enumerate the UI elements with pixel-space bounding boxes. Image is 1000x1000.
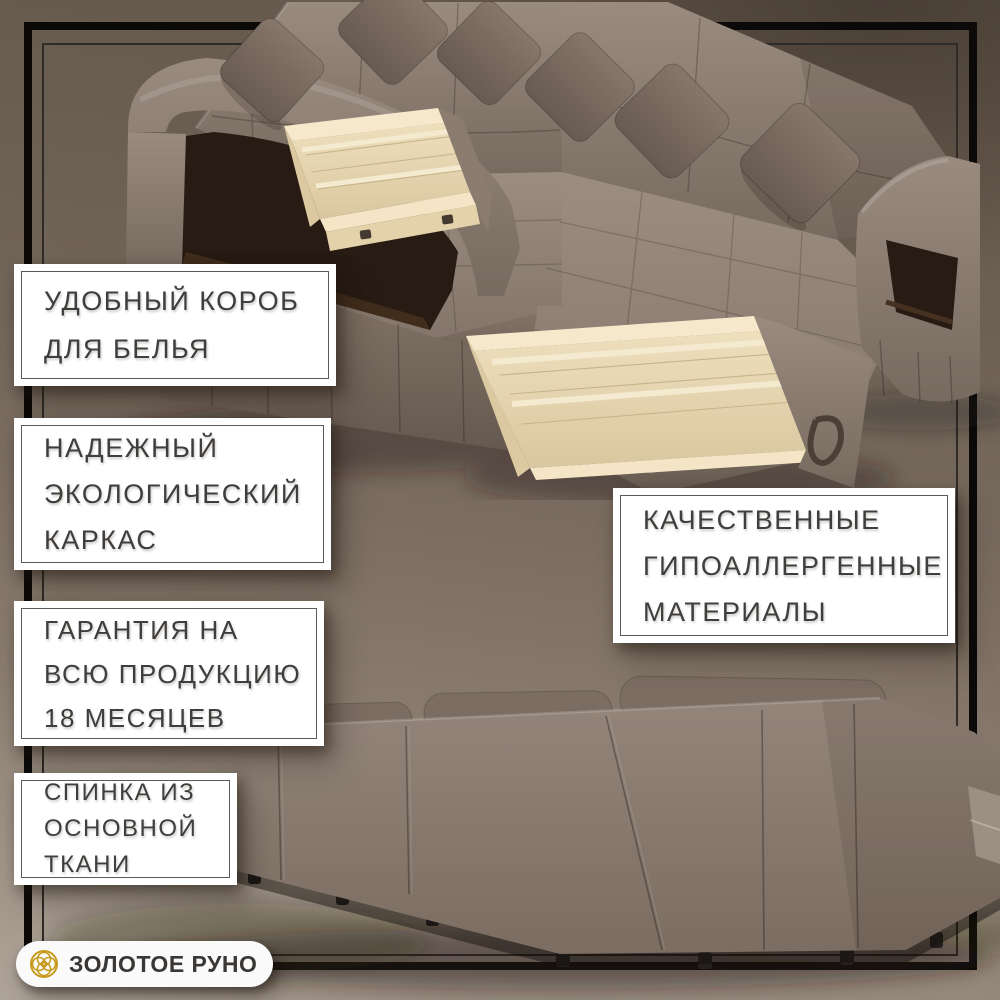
- feature-text-line: ТКАНИ: [44, 847, 229, 883]
- sofa-product-card: УДОБНЫЙ КОРОБ ДЛЯ БЕЛЬЯ НАДЕЖНЫЙ ЭКОЛОГИ…: [0, 0, 1000, 1000]
- feature-box-warranty: ГАРАНТИЯ НА ВСЮ ПРОДУКЦИЮ 18 МЕСЯЦЕВ: [14, 601, 324, 746]
- feature-box-inner-border: УДОБНЫЙ КОРОБ ДЛЯ БЕЛЬЯ: [21, 271, 329, 379]
- feature-text-line: ОСНОВНОЙ: [44, 811, 229, 847]
- brand-badge: ЗОЛОТОЕ РУНО: [16, 941, 273, 987]
- feature-text-line: КАРКАС: [44, 517, 323, 563]
- feature-text-line: СПИНКА ИЗ: [44, 775, 229, 811]
- feature-box-inner-border: СПИНКА ИЗ ОСНОВНОЙ ТКАНИ: [21, 780, 230, 878]
- feature-text-line: ВСЮ ПРОДУКЦИЮ: [44, 652, 316, 696]
- feature-box-laundry-box: УДОБНЫЙ КОРОБ ДЛЯ БЕЛЬЯ: [14, 264, 336, 386]
- feature-text-line: ГИПОАЛЛЕРГЕННЫЕ: [643, 543, 947, 589]
- feature-text-line: МАТЕРИАЛЫ: [643, 589, 947, 635]
- feature-box-inner-border: КАЧЕСТВЕННЫЕ ГИПОАЛЛЕРГЕННЫЕ МАТЕРИАЛЫ: [620, 495, 948, 636]
- feature-text-line: ДЛЯ БЕЛЬЯ: [44, 325, 328, 373]
- feature-box-inner-border: ГАРАНТИЯ НА ВСЮ ПРОДУКЦИЮ 18 МЕСЯЦЕВ: [21, 608, 317, 739]
- feature-box-backrest: СПИНКА ИЗ ОСНОВНОЙ ТКАНИ: [14, 773, 237, 885]
- feature-box-materials: КАЧЕСТВЕННЫЕ ГИПОАЛЛЕРГЕННЫЕ МАТЕРИАЛЫ: [613, 488, 955, 643]
- feature-text-line: 18 МЕСЯЦЕВ: [44, 696, 316, 740]
- golden-fleece-icon: [28, 948, 60, 980]
- feature-text-line: НАДЕЖНЫЙ: [44, 425, 323, 471]
- feature-text-line: УДОБНЫЙ КОРОБ: [44, 277, 328, 325]
- feature-box-inner-border: НАДЕЖНЫЙ ЭКОЛОГИЧЕСКИЙ КАРКАС: [21, 425, 324, 563]
- feature-text-line: ГАРАНТИЯ НА: [44, 608, 316, 652]
- feature-text-line: ЭКОЛОГИЧЕСКИЙ: [44, 471, 323, 517]
- feature-box-eco-frame: НАДЕЖНЫЙ ЭКОЛОГИЧЕСКИЙ КАРКАС: [14, 418, 331, 570]
- brand-name: ЗОЛОТОЕ РУНО: [69, 951, 257, 978]
- feature-text-line: КАЧЕСТВЕННЫЕ: [643, 497, 947, 543]
